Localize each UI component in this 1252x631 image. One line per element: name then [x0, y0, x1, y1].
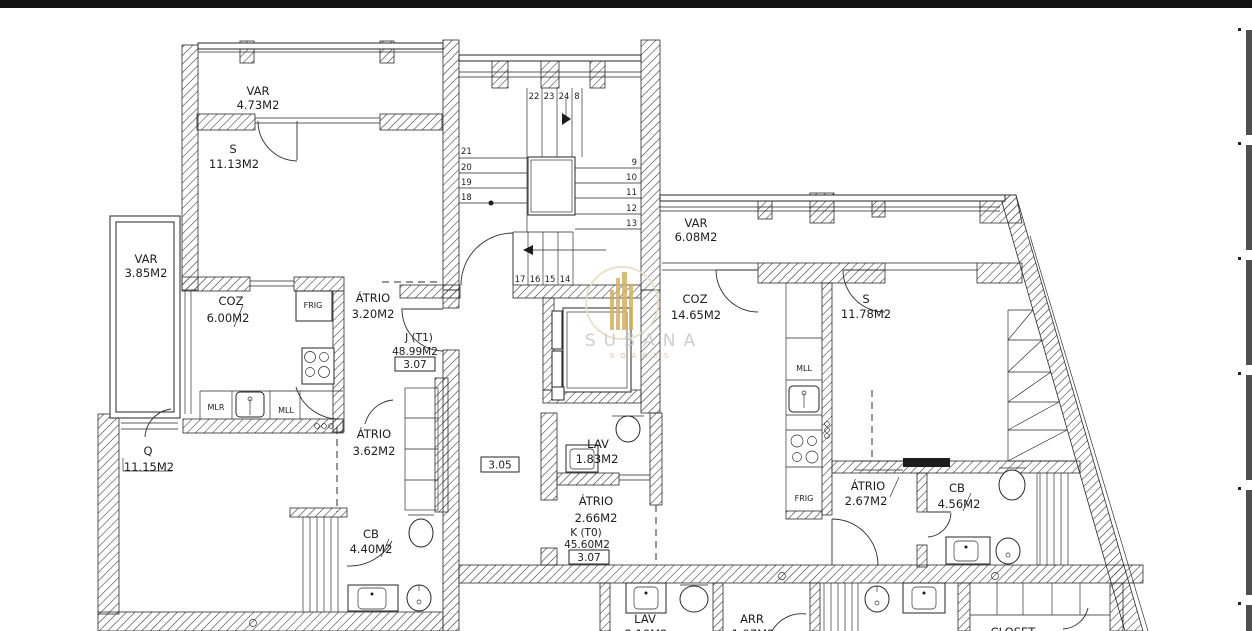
appliance-label-frig: FRIG [795, 494, 814, 503]
toilet-symbol [409, 519, 433, 547]
room-area: 4.56M2 [938, 497, 981, 511]
room-area: 2.18M2 [625, 627, 668, 631]
room-area: 1.83M2 [576, 452, 619, 466]
room-area: 3.62M2 [353, 444, 396, 458]
top-scan-bar [0, 0, 1252, 8]
room-label-atrio-center: ÁTRIO [579, 493, 613, 508]
stair-number: 9 [632, 158, 637, 168]
room-area: 6.00M2 [207, 311, 250, 325]
room-area: 11.13M2 [209, 157, 259, 171]
floor-plan-canvas: 22 23 24 8 21 20 19 18 9 10 11 12 13 17 … [0, 0, 1252, 631]
unit-k-area: 45.60M2 [564, 539, 610, 551]
stair-number: 20 [461, 163, 472, 173]
toilet-symbol [999, 470, 1025, 500]
room-label-lav-center: LAV [587, 437, 609, 451]
room-label-cb-left: CB [363, 527, 379, 541]
bidet-symbol [996, 538, 1020, 564]
stair-number: 14 [560, 275, 571, 285]
stair-number: 21 [461, 147, 472, 157]
stair-number: 16 [530, 275, 541, 285]
sink-symbol [626, 583, 666, 613]
stair-number: 12 [626, 204, 637, 214]
room-label-closet: CLOSET [991, 625, 1037, 631]
room-area: 3.20M2 [352, 307, 395, 321]
room-label-var-right: VAR [685, 216, 708, 230]
stair-number: 23 [544, 92, 555, 102]
room-area: 14.65M2 [671, 308, 721, 322]
room-area: 4.73M2 [237, 98, 280, 112]
appliance-label-mll: MLL [796, 364, 812, 373]
room-label-coz-left: COZ [219, 294, 244, 308]
toilet-symbol [616, 416, 640, 442]
appliance-label-mlr: MLR [208, 403, 225, 412]
stair-arrow-up-icon [562, 113, 571, 125]
floor-plan-page: 22 23 24 8 21 20 19 18 9 10 11 12 13 17 … [0, 0, 1252, 631]
room-label-var-left: VAR [135, 252, 158, 266]
sink-symbol [348, 585, 398, 611]
stair-number: 15 [545, 275, 556, 285]
toilet-symbol [680, 586, 708, 612]
room-label-s-right: S [862, 292, 869, 306]
unit-k-tag: 3.07 [577, 552, 600, 564]
window-sill [903, 458, 950, 467]
stair-number: 17 [515, 275, 526, 285]
watermark-name: SUSANA [585, 331, 703, 351]
stair-core [528, 157, 575, 215]
room-label-atrio-right: ÁTRIO [851, 478, 885, 493]
room-area: 11.78M2 [841, 307, 891, 321]
appliance-label-frig: FRIG [304, 301, 323, 310]
room-label-atrio-entry: ÁTRIO [356, 290, 390, 305]
unit-j-tag: 3.07 [403, 359, 426, 371]
appliance-label-mll: MLL [278, 406, 294, 415]
room-label-arr-bottom: ARR [740, 612, 764, 626]
elevator-door [552, 311, 562, 349]
unit-j-label: J (T1) [404, 332, 433, 344]
room-area: 11.15M2 [124, 460, 174, 474]
stair-number: 22 [529, 92, 540, 102]
room-area: 6.08M2 [675, 230, 718, 244]
sink-symbol [903, 583, 945, 613]
room-label-lav-bottom: LAV [634, 612, 656, 626]
room-label-cb-right: CB [949, 481, 965, 495]
room-label-s-top-left: S [229, 142, 236, 156]
unit-j-area: 48.99M2 [392, 346, 438, 358]
stair-number: 18 [461, 193, 472, 203]
room-area: 1.97M2 [732, 627, 775, 631]
room-label-atrio-inner: ÁTRIO [357, 426, 391, 441]
room-area: 4.40M2 [350, 542, 393, 556]
elevator-door [552, 351, 562, 389]
stair-number: 10 [626, 173, 637, 183]
watermark-subname: SOARES [610, 352, 674, 360]
room-area: 3.85M2 [125, 266, 168, 280]
stair-number: 24 [559, 92, 570, 102]
stair-number: 11 [626, 188, 637, 198]
corridor-tag: 3.05 [488, 460, 511, 472]
stair-number: 19 [461, 178, 472, 188]
room-area: 2.66M2 [575, 511, 618, 525]
room-label-var-top-left: VAR [247, 84, 270, 98]
room-label-q: Q [143, 444, 152, 458]
stove-symbol [302, 348, 334, 384]
stairwell: 22 23 24 8 21 20 19 18 9 10 11 12 13 17 … [459, 88, 641, 285]
unit-k-label: K (T0) [570, 527, 602, 539]
room-label-coz-right: COZ [683, 292, 708, 306]
room-area: 2.67M2 [845, 494, 888, 508]
stair-newel-dot [489, 201, 494, 206]
right-edge-marks [1238, 28, 1252, 631]
stair-number: 13 [626, 219, 637, 229]
stair-number: 8 [574, 92, 579, 102]
